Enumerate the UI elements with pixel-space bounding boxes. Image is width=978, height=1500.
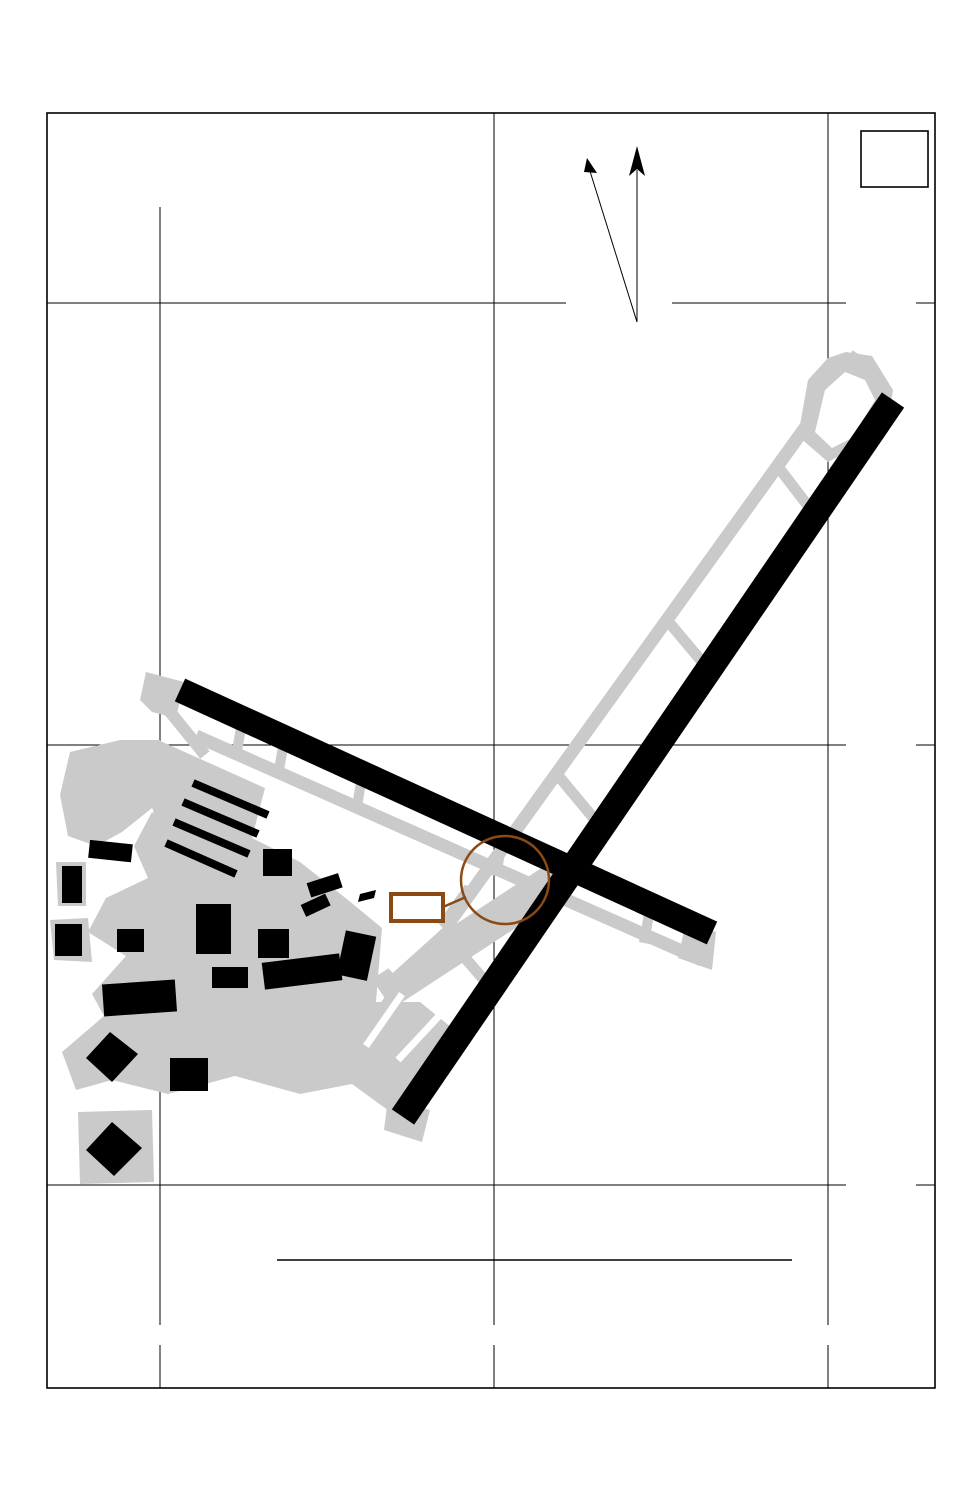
field-elev-box (861, 131, 928, 187)
magnetic-arrowhead-icon (584, 158, 597, 173)
magnetic-north-arrow (589, 168, 637, 322)
feature-labels (358, 890, 376, 902)
airport-diagram (0, 0, 978, 1500)
comm-box (50, 117, 178, 207)
tower-flag-icon (358, 890, 376, 902)
runway-05-23 (403, 400, 893, 1117)
compass (584, 146, 645, 322)
hot-spot-box (391, 894, 443, 921)
